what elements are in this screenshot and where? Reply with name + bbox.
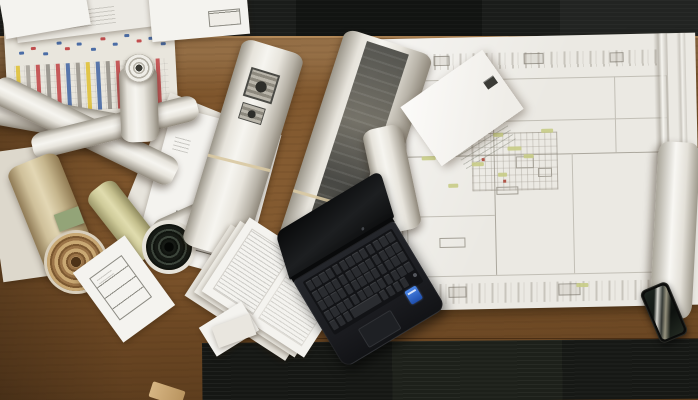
chart-mark — [124, 34, 129, 37]
chart-mark — [65, 47, 70, 50]
chart-mark — [91, 48, 96, 51]
sheet-logo — [172, 136, 191, 154]
roll-photo-print — [238, 102, 266, 125]
chart-mark — [31, 47, 36, 50]
plan-highlight — [422, 156, 436, 160]
webcam-icon — [361, 227, 364, 232]
sketch-building — [610, 52, 624, 62]
chart-mark — [19, 51, 24, 54]
sketch-building — [524, 53, 544, 64]
chart-mark — [100, 37, 105, 40]
plan-highlight — [507, 146, 521, 150]
chart-stripe — [106, 61, 113, 109]
plan-wall — [493, 117, 667, 122]
plan-stamp-box — [439, 238, 465, 249]
chart-mark — [43, 52, 48, 55]
sketch-building — [434, 56, 450, 66]
plan-highlight — [576, 283, 588, 287]
chart-mark — [137, 39, 142, 42]
white-roll-spiral-end — [124, 54, 154, 82]
chart-mark — [113, 43, 118, 46]
plan-highlight — [472, 162, 484, 166]
carpet-tile-dark — [296, 0, 482, 37]
plan-room-box — [496, 186, 518, 194]
plan-highlight — [448, 184, 458, 188]
plan-highlight — [541, 129, 553, 133]
chart-stripe — [86, 62, 93, 110]
form-text — [96, 268, 115, 284]
plan-highlight — [493, 133, 503, 137]
plan-wall — [572, 153, 576, 273]
plan-red-mark — [482, 158, 485, 161]
plan-red-mark — [503, 180, 506, 183]
plan-wall — [614, 76, 617, 152]
mini-table — [208, 8, 241, 27]
plan-highlight — [498, 173, 507, 177]
chart-stripe — [96, 62, 103, 110]
roll-band — [208, 154, 271, 172]
sketch-building — [448, 287, 466, 298]
chart-mark — [161, 42, 166, 45]
plan-highlight — [524, 154, 534, 158]
chart-mark — [77, 42, 82, 45]
plan-wall — [408, 271, 670, 277]
desk-scene — [0, 0, 698, 400]
roll-photo-print — [243, 67, 280, 104]
chart-mark — [57, 42, 62, 45]
plan-room-box — [538, 168, 552, 177]
envelope-stamp — [483, 76, 498, 90]
chart-stripe — [76, 63, 83, 111]
